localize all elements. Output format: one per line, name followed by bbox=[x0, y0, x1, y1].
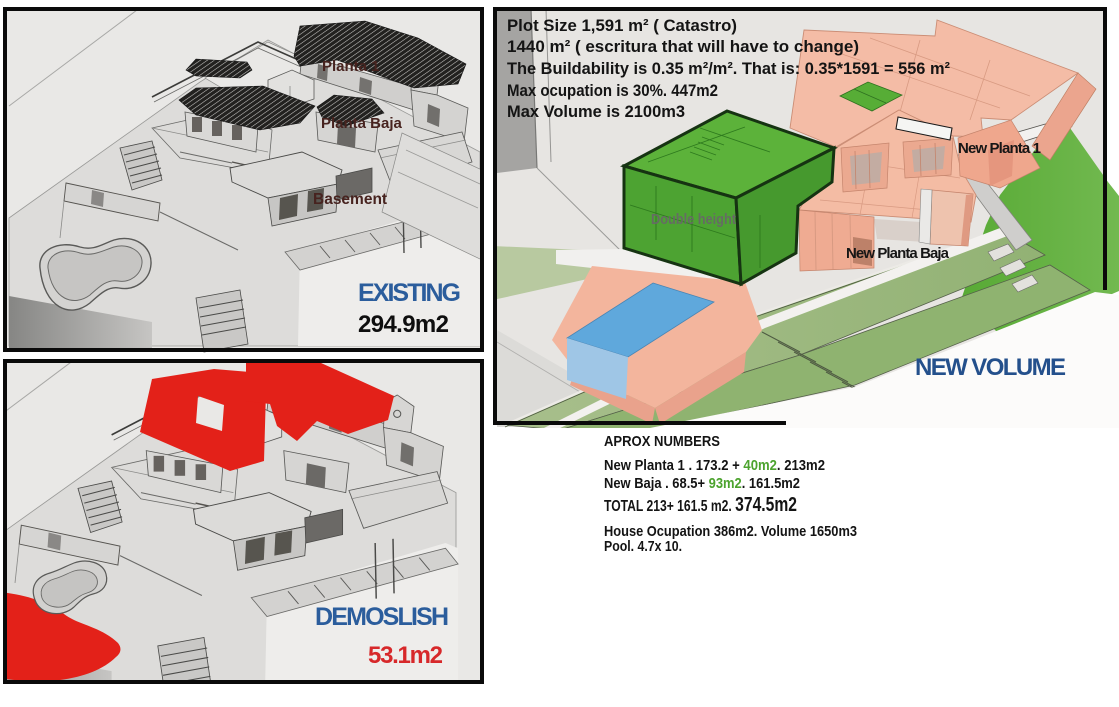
svg-text:Basement: Basement bbox=[313, 191, 387, 208]
svg-text:294.9m2: 294.9m2 bbox=[358, 311, 449, 338]
svg-text:Plot Size 1,591 m² ( Catastro): Plot Size 1,591 m² ( Catastro) bbox=[507, 16, 737, 35]
svg-text:EXISTING: EXISTING bbox=[358, 279, 461, 307]
svg-text:New Planta 1: New Planta 1 bbox=[958, 140, 1041, 157]
svg-text:Max ocupation is 30%. 447m2: Max ocupation is 30%. 447m2 bbox=[507, 81, 718, 100]
svg-text:New Planta Baja: New Planta Baja bbox=[846, 245, 950, 262]
svg-text:NEW VOLUME: NEW VOLUME bbox=[915, 354, 1066, 381]
svg-text:53.1m2: 53.1m2 bbox=[368, 642, 443, 669]
svg-text:Planta 1: Planta 1 bbox=[322, 58, 380, 75]
svg-text:1440 m² ( escritura that will: 1440 m² ( escritura that will have to ch… bbox=[507, 37, 859, 56]
svg-text:The Buildability is 0.35 m²/m²: The Buildability is 0.35 m²/m². That is:… bbox=[507, 59, 950, 78]
svg-text:DEMOSLISH: DEMOSLISH bbox=[315, 603, 449, 631]
svg-text:Planta Baja: Planta Baja bbox=[321, 115, 403, 132]
svg-text:TOTAL 213+ 161.5 m2. 374.5m2: TOTAL 213+ 161.5 m2. 374.5m2 bbox=[604, 494, 797, 516]
svg-text:New Baja . 68.5+ 93m2. 161.5m: New Baja . 68.5+ 93m2. 161.5m2 bbox=[604, 475, 800, 492]
svg-text:New Planta 1 . 173.2 + 40m2.: New Planta 1 . 173.2 + 40m2. 213m2 bbox=[604, 457, 825, 474]
svg-text:Pool. 4.7x 10.: Pool. 4.7x 10. bbox=[604, 538, 682, 555]
svg-text:Double height: Double height bbox=[651, 211, 736, 228]
svg-text:APROX NUMBERS: APROX NUMBERS bbox=[604, 433, 720, 450]
svg-text:Max Volume is 2100m3: Max Volume is 2100m3 bbox=[507, 102, 685, 121]
